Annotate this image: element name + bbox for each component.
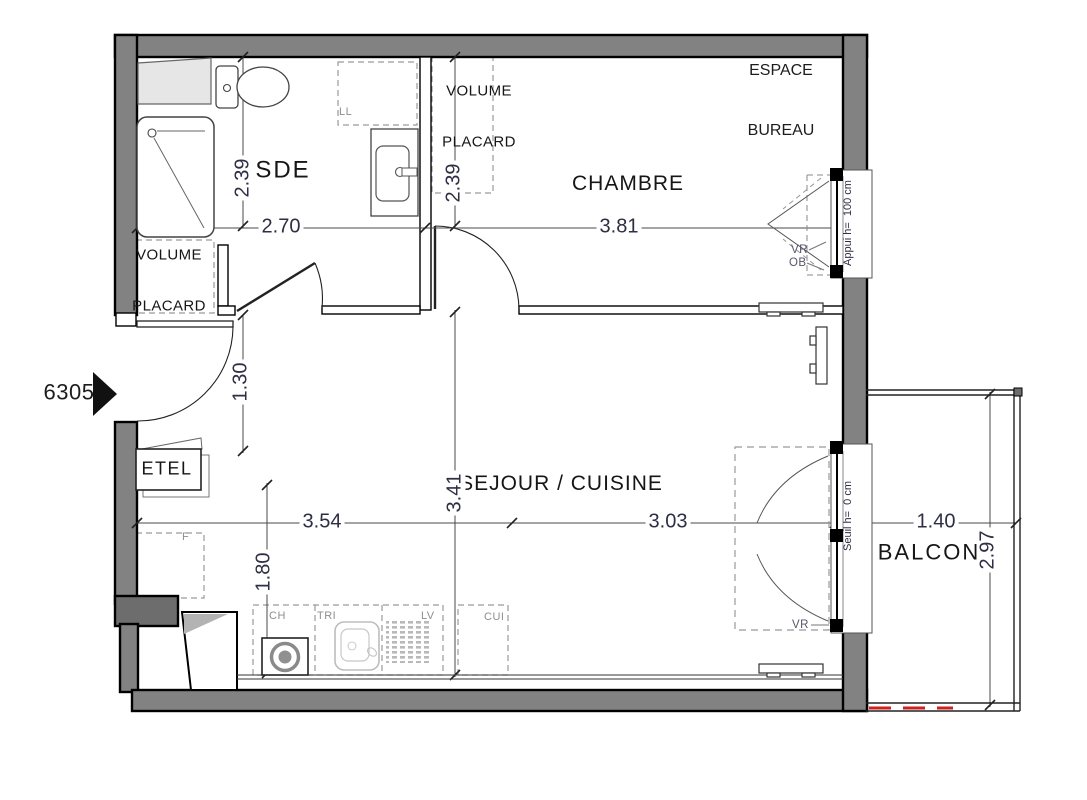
bay-threshold-label: Seuil h= 0 cm: [843, 481, 855, 551]
dim-entry-width: 1.30: [231, 360, 252, 405]
room-label-balcon: BALCON: [878, 540, 980, 563]
radiator-sejour-south: [759, 664, 823, 673]
window-anchor-top: [830, 168, 843, 181]
label-dishwasher: LV: [421, 611, 435, 623]
sink-drain: [348, 642, 356, 650]
water-heater-core: [279, 651, 292, 664]
window-sill-label: Appui h= 100 cm: [843, 180, 855, 266]
wall-right-c: [843, 631, 867, 711]
room-label-sde: SDE: [255, 157, 310, 182]
dimensions: [132, 52, 1021, 710]
dim-kitchen-run: 1.80: [254, 550, 275, 595]
radiator-sejour-east: [816, 327, 827, 384]
wall-right-b: [843, 276, 867, 446]
wall-sde-south-right: [322, 306, 420, 314]
dimension-ticks: [132, 52, 1021, 710]
kitchen-sink-bowl: [341, 629, 369, 661]
wall-bottom: [132, 690, 867, 711]
dishwasher-hatch: [386, 620, 430, 663]
sink-soap: [366, 646, 378, 658]
dim-placard-depth: 2.39: [444, 161, 465, 206]
wall-right-a: [843, 35, 867, 172]
entry-door-arc: [137, 327, 233, 421]
label-waste-sorting: TRI: [317, 611, 336, 623]
wall-left-lower: [115, 422, 137, 604]
floor-plan: 6305 SDE CHAMBRE SEJOUR / CUISINE BALCON…: [0, 0, 1087, 800]
kitchen-fixtures: [182, 612, 843, 690]
bay-anchor-top: [830, 441, 843, 454]
dim-balcon-width: 1.40: [914, 512, 959, 533]
wc-tank: [216, 66, 238, 108]
tag-vr-window: VR: [791, 244, 808, 256]
label-washing-machine: LL: [339, 107, 352, 119]
bathroom-fixtures: [137, 58, 418, 237]
room-label-sejour: SEJOUR / CUISINE: [459, 473, 663, 495]
fridge-box: [136, 533, 204, 598]
mirror-shelf: [138, 58, 211, 104]
balcony-corner-post: [1014, 388, 1022, 396]
dim-sde-depth: 2.39: [233, 156, 254, 201]
placard-label-sde: VOLUME PLACARD: [132, 213, 206, 332]
vr-ob-leaders: [807, 242, 829, 625]
bay-anchor-mid: [830, 529, 843, 542]
sde-door-arc: [315, 263, 322, 308]
etel-label: ETEL: [141, 460, 192, 479]
room-label-bureau: ESPACE BUREAU: [748, 21, 815, 161]
bay-clearance-dashed: [735, 447, 829, 630]
bay-swing: [757, 456, 828, 621]
dim-sejour-left: 3.54: [300, 512, 345, 533]
vanity-faucet: [402, 168, 417, 176]
floor-plan-drawing: [0, 0, 1087, 800]
dim-sejour-right: 3.03: [646, 512, 691, 533]
placard-label-chambre: VOLUME PLACARD: [442, 49, 516, 168]
label-fridge: F: [182, 532, 189, 544]
dim-balcon-depth: 2.97: [978, 528, 999, 573]
label-cooker: CUI: [484, 612, 504, 624]
unit-number: 6305: [44, 380, 95, 403]
sde-door-leaf: [237, 263, 315, 311]
bureau-line2: BUREAU: [748, 121, 815, 141]
wc-bowl: [237, 67, 289, 107]
dim-sejour-depth: 3.41: [445, 471, 466, 516]
wall-sde-chambre: [420, 57, 431, 310]
entry-arrow-icon: [93, 372, 117, 416]
dim-chambre-width: 3.81: [597, 217, 642, 238]
dim-sde-width: 2.70: [259, 217, 304, 238]
radiator-chambre: [759, 303, 823, 312]
window-anchor-bottom: [830, 265, 843, 278]
bay-anchor-bottom: [830, 619, 843, 632]
room-label-chambre: CHAMBRE: [572, 173, 684, 195]
wall-left-bottom-strip: [120, 624, 138, 692]
wall-placard-partition: [218, 245, 228, 306]
tag-vr-bay: VR: [792, 619, 809, 631]
wall-step-block: [115, 596, 178, 626]
label-water-heater: CH: [269, 611, 286, 623]
chambre-door-arc: [435, 226, 519, 309]
tag-ob-window: OB: [789, 257, 806, 269]
wall-placard-jamb: [218, 306, 235, 315]
bureau-line1: ESPACE: [748, 61, 815, 81]
